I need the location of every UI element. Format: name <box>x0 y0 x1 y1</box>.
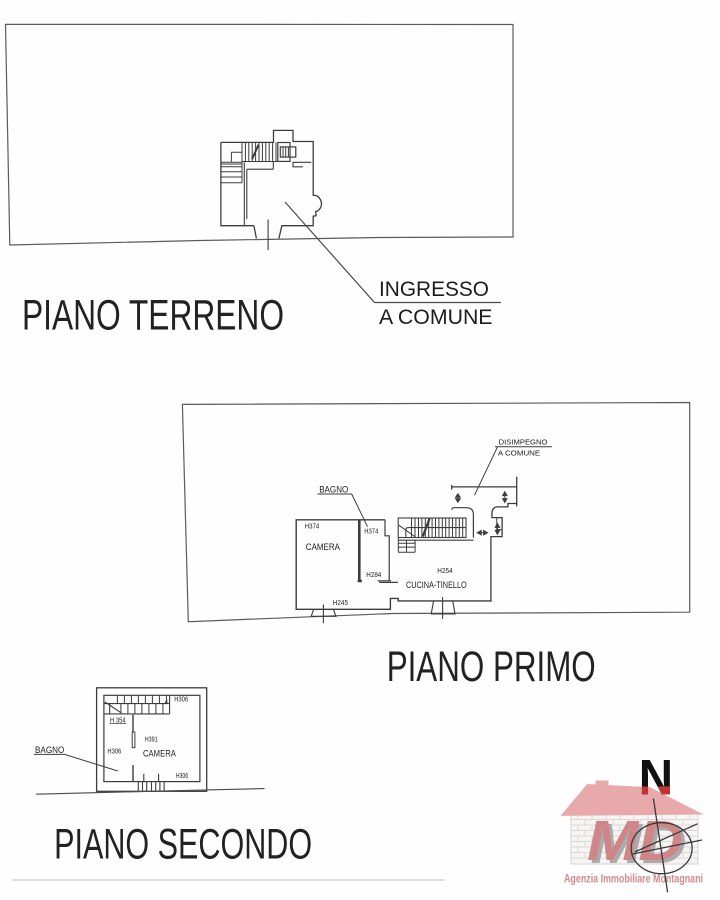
svg-text:A COMUNE: A COMUNE <box>379 306 493 329</box>
svg-text:BAGNO: BAGNO <box>35 745 64 755</box>
svg-text:H284: H284 <box>366 570 381 579</box>
svg-text:H306: H306 <box>176 773 188 780</box>
svg-text:CAMERA: CAMERA <box>143 748 176 758</box>
svg-text:PIANO SECONDO: PIANO SECONDO <box>54 821 312 869</box>
svg-text:H374: H374 <box>364 527 378 536</box>
svg-text:Agenzia Immobiliare Montagnani: Agenzia Immobiliare Montagnani <box>564 874 703 886</box>
svg-text:H374: H374 <box>305 521 320 530</box>
svg-text:H391: H391 <box>145 736 158 743</box>
svg-text:PIANO PRIMO: PIANO PRIMO <box>387 643 596 691</box>
svg-text:MD: MD <box>587 809 683 873</box>
svg-text:PIANO TERRENO: PIANO TERRENO <box>22 291 284 339</box>
svg-text:H306: H306 <box>107 749 121 756</box>
svg-text:H306: H306 <box>174 697 188 704</box>
svg-text:CAMERA: CAMERA <box>306 542 341 553</box>
svg-text:CUCINA-TINELLO: CUCINA-TINELLO <box>406 580 467 590</box>
svg-text:DISIMPEGNO: DISIMPEGNO <box>499 437 548 446</box>
svg-text:N: N <box>639 750 673 805</box>
svg-text:A COMUNE: A COMUNE <box>498 448 540 457</box>
svg-text:H245: H245 <box>333 598 348 607</box>
svg-text:INGRESSO: INGRESSO <box>379 277 489 301</box>
svg-text:BAGNO: BAGNO <box>319 485 348 495</box>
svg-text:H254: H254 <box>437 566 452 575</box>
